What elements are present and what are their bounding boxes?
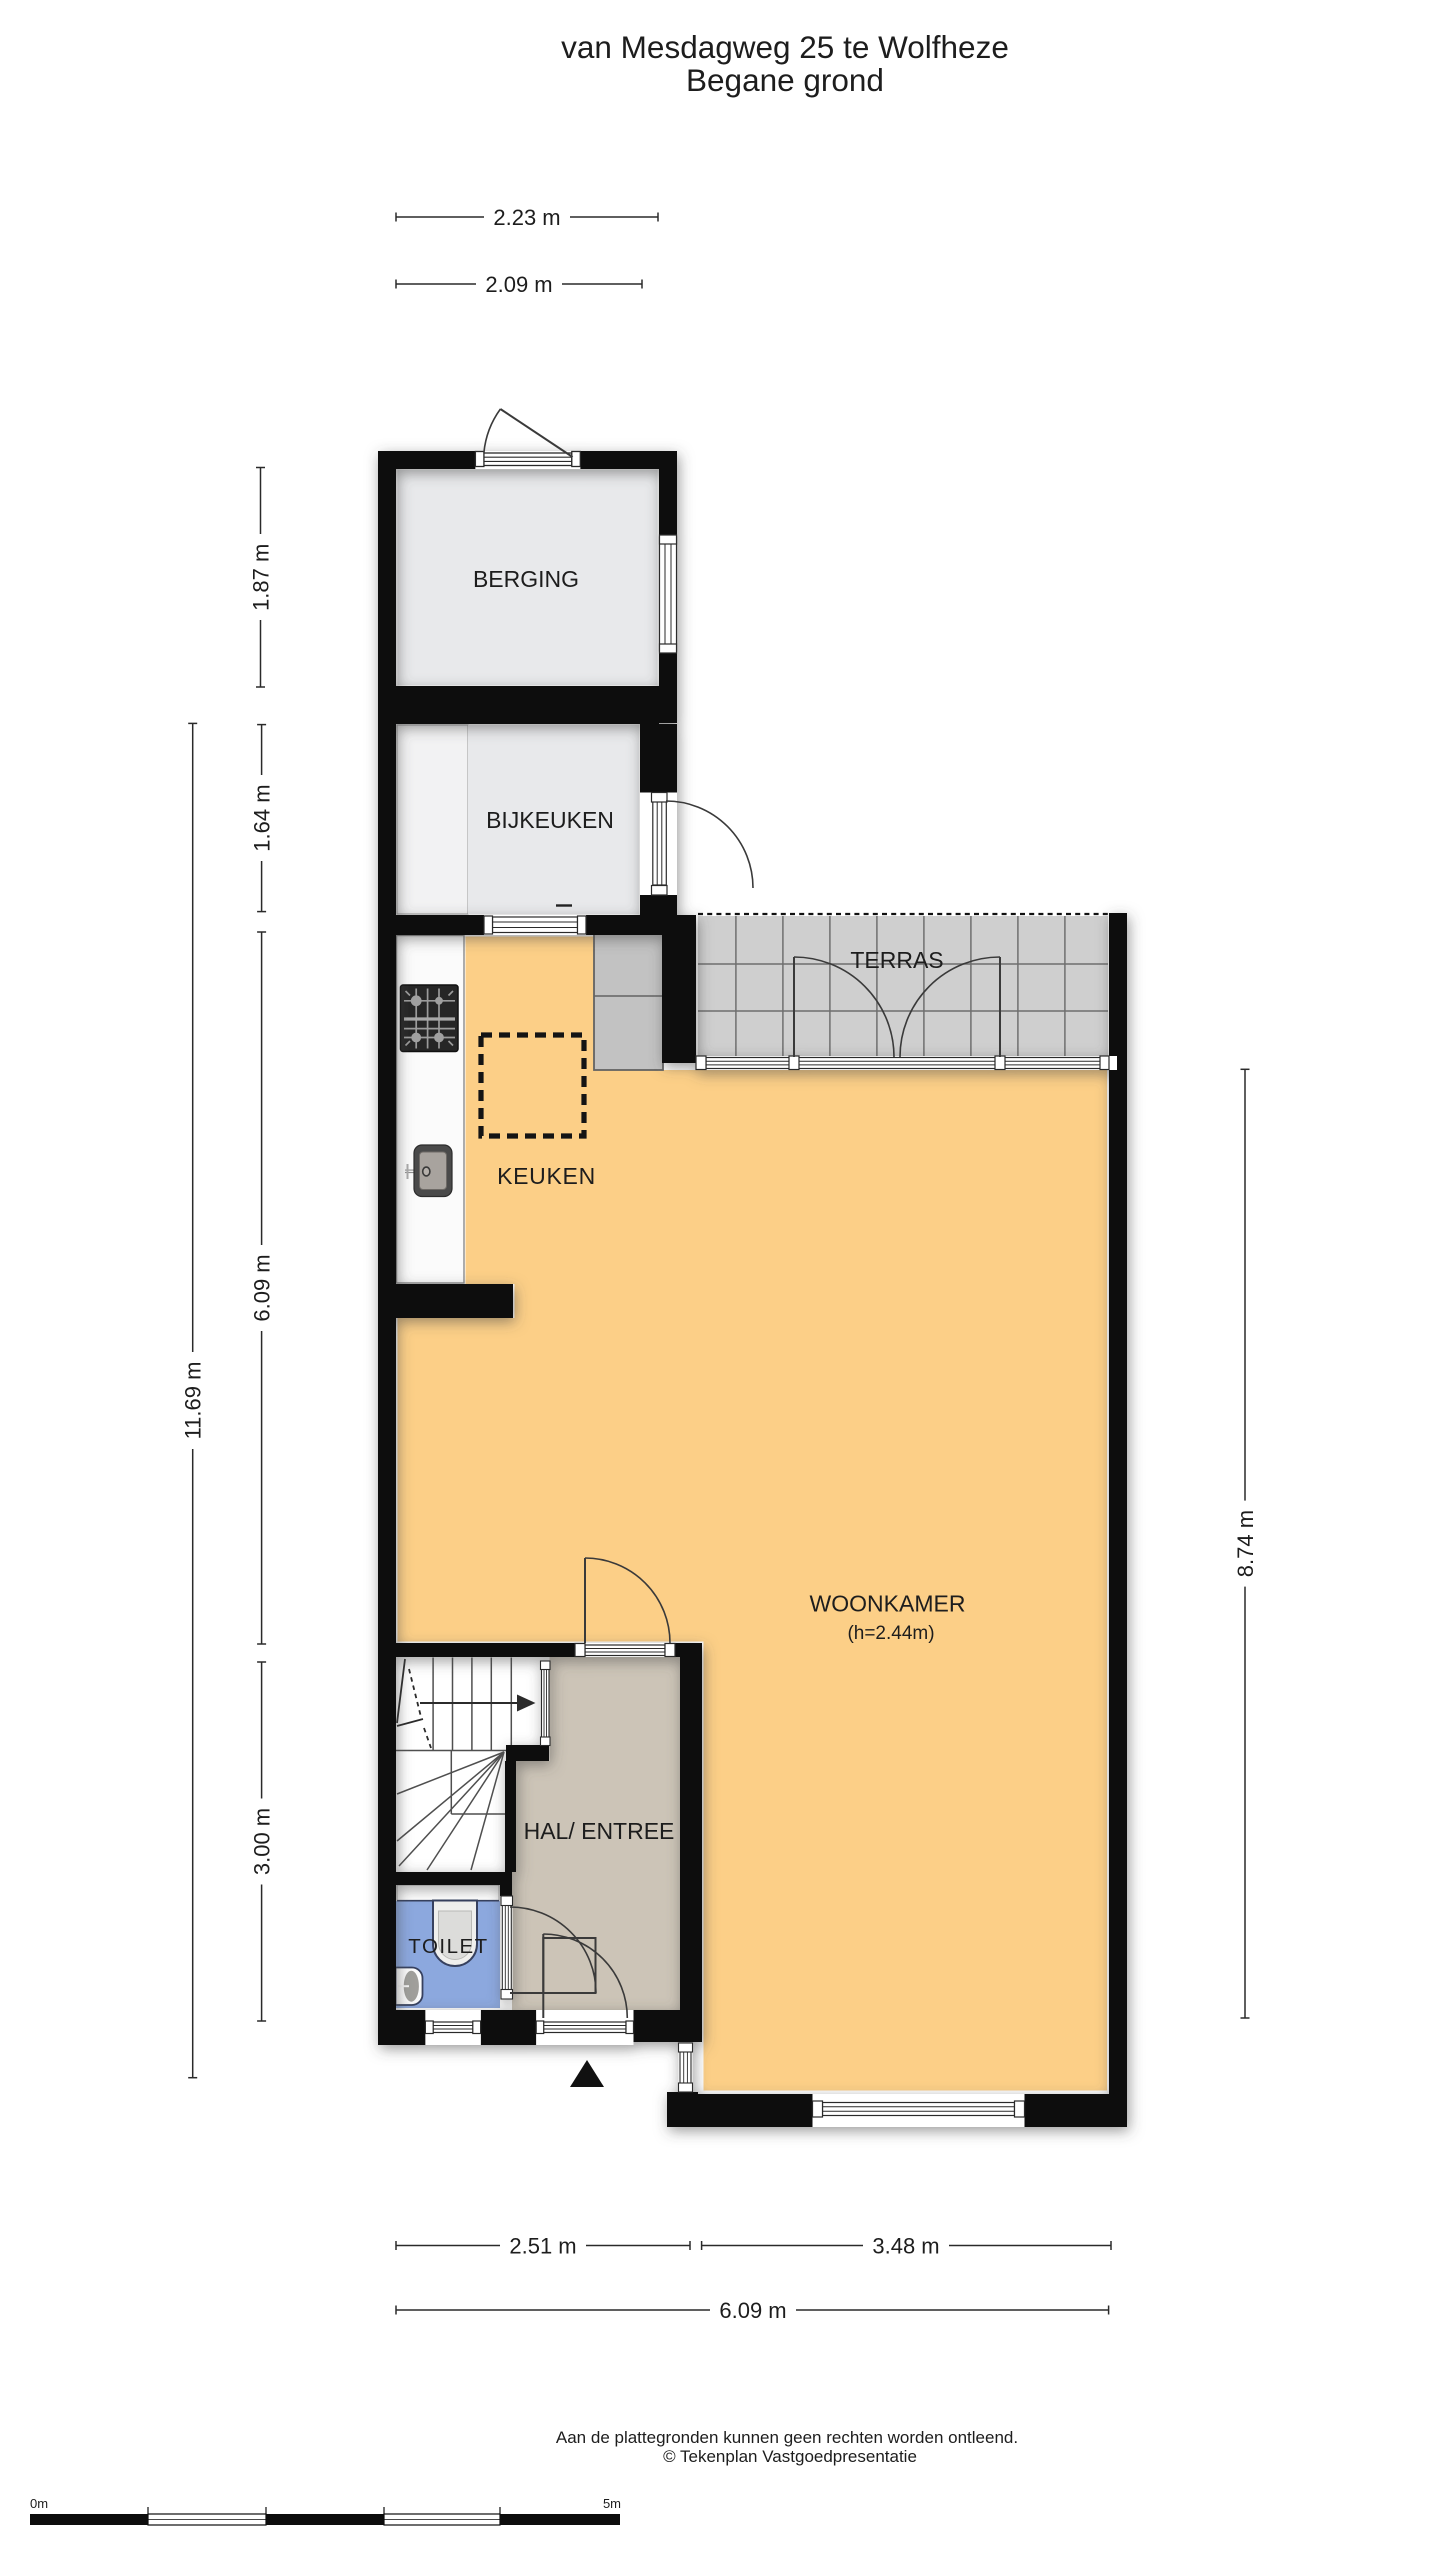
- svg-text:TOILET: TOILET: [408, 1935, 488, 1958]
- svg-text:(h=2.44m): (h=2.44m): [847, 1623, 934, 1644]
- svg-text:1.87 m: 1.87 m: [249, 544, 274, 611]
- svg-text:BERGING: BERGING: [473, 566, 579, 592]
- svg-text:2.51 m: 2.51 m: [509, 2234, 576, 2259]
- svg-text:HAL/ ENTREE: HAL/ ENTREE: [524, 1818, 675, 1844]
- svg-text:WOONKAMER: WOONKAMER: [810, 1591, 966, 1617]
- svg-text:6.09 m: 6.09 m: [250, 1254, 275, 1321]
- svg-text:Begane grond: Begane grond: [686, 62, 884, 98]
- svg-text:2.23 m: 2.23 m: [493, 205, 560, 230]
- svg-text:TERRAS: TERRAS: [850, 947, 943, 973]
- svg-text:1.64 m: 1.64 m: [250, 784, 275, 851]
- svg-text:BIJKEUKEN: BIJKEUKEN: [486, 807, 614, 833]
- svg-text:6.09 m: 6.09 m: [719, 2298, 786, 2323]
- svg-text:Aan de plattegronden kunnen ge: Aan de plattegronden kunnen geen rechten…: [556, 2428, 1018, 2447]
- svg-text:KEUKEN: KEUKEN: [497, 1163, 596, 1189]
- svg-text:van Mesdagweg 25 te Wolfheze: van Mesdagweg 25 te Wolfheze: [561, 29, 1009, 65]
- svg-text:3.48 m: 3.48 m: [872, 2234, 939, 2259]
- svg-text:5m: 5m: [603, 2496, 621, 2511]
- svg-text:11.69 m: 11.69 m: [181, 1362, 206, 1440]
- svg-text:0m: 0m: [30, 2496, 48, 2511]
- svg-text:3.00 m: 3.00 m: [250, 1808, 275, 1875]
- svg-text:8.74 m: 8.74 m: [1233, 1510, 1258, 1577]
- svg-text:2.09 m: 2.09 m: [485, 272, 552, 297]
- svg-text:© Tekenplan Vastgoedpresentati: © Tekenplan Vastgoedpresentatie: [663, 2447, 917, 2466]
